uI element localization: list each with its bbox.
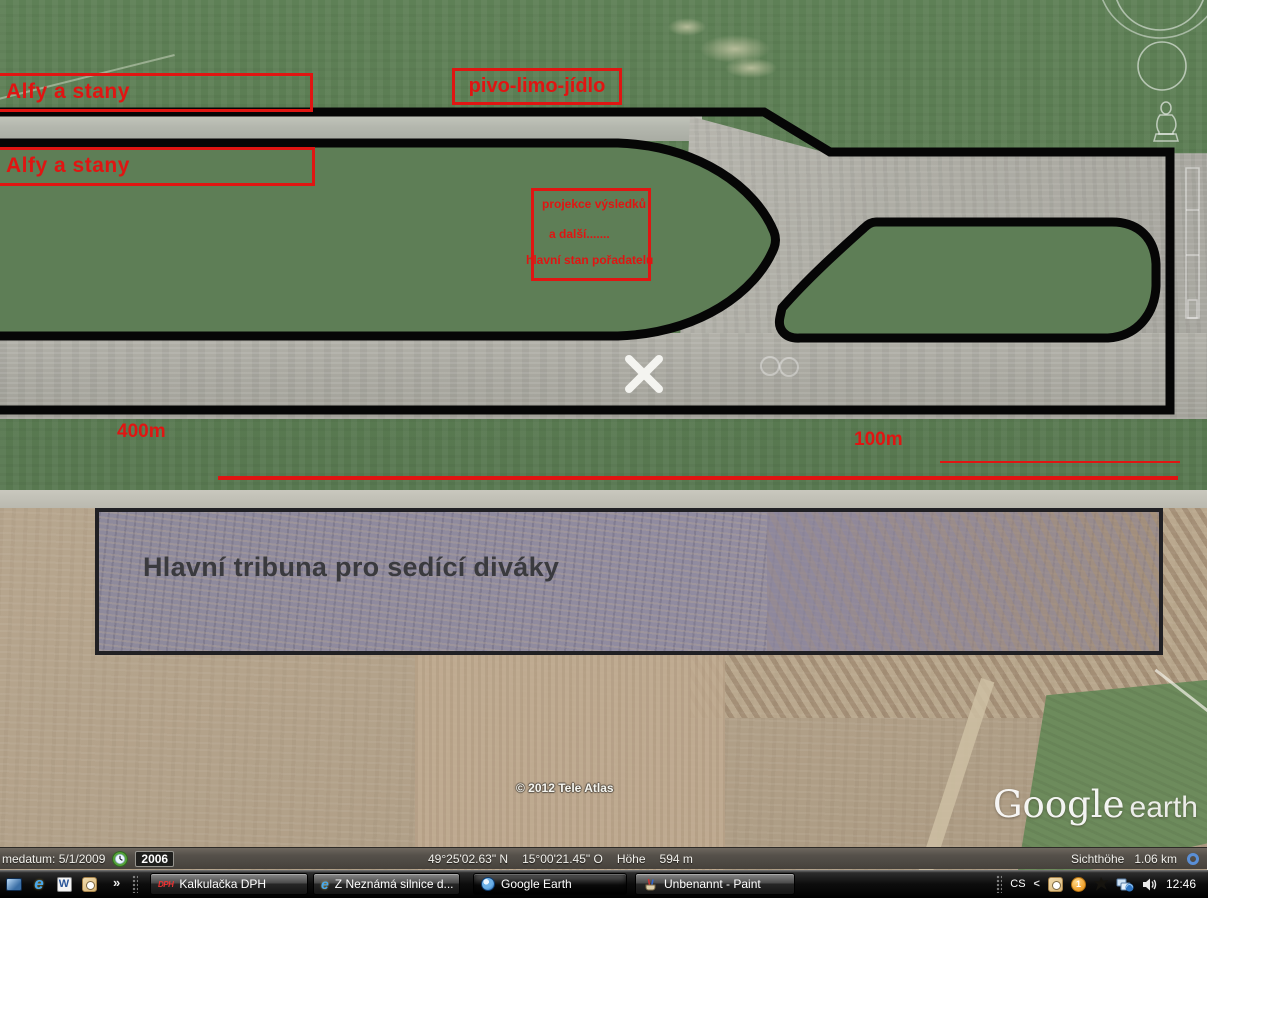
runway-x-marking [629,359,659,389]
language-indicator[interactable]: CS [1010,878,1025,890]
internet-explorer-icon[interactable]: e [30,875,48,893]
google-earth-logo: Googleearth [993,783,1198,826]
word-icon[interactable]: W [55,875,73,893]
distance-label-400m: 400m [117,421,166,443]
taskbar-grip-handle[interactable] [132,875,138,893]
internet-explorer-icon: e [321,876,329,892]
tray-ink-splat-icon[interactable] [1094,877,1108,891]
show-desktop-icon[interactable] [5,875,23,893]
annotation-line: hlavní stan pořadatelů [526,253,653,267]
annotation-box-projekce: projekce výsledků a další....... hlavní … [531,188,651,281]
quick-launch-bar: e W [5,875,98,893]
annotation-box-pivo: pivo-limo-jídlo [452,68,622,105]
status-bar: medatum: 5/1/2009 2006 49°25'02.63" N 15… [0,847,1207,869]
volume-icon[interactable] [1142,877,1158,892]
pavement-circle-marking [780,358,798,376]
annotation-label: Alfy a stany [6,80,130,104]
system-tray: CS < 1 12:46 [996,870,1208,898]
pavement-circle-marking [761,357,779,375]
pegman-figure-icon[interactable] [1154,102,1178,141]
plowed-field-center [415,650,725,870]
logo-google: Google [993,783,1125,826]
field-road [0,490,1207,510]
google-earth-viewport[interactable]: Alfy a stany Alfy a stany pivo-limo-jídl… [0,0,1207,870]
annotation-label: pivo-limo-jídlo [455,75,619,98]
red-measure-line-short [940,461,1180,463]
annotation-box-alfy-top: Alfy a stany [0,73,313,112]
annotation-line: a další....... [549,227,610,241]
paint-icon [643,877,658,892]
taskbar-button-kalkulacka[interactable]: DPH Kalkulačka DPH [150,873,308,895]
streaming-indicator-icon [1187,853,1199,865]
annotation-label: Alfy a stany [6,154,130,178]
google-earth-globe-icon [481,877,495,891]
red-measure-line-long [218,476,1178,480]
elevation-label: Höhe [617,852,646,866]
screen: Alfy a stany Alfy a stany pivo-limo-jídl… [0,0,1280,1024]
tray-grip-handle[interactable] [996,875,1002,893]
latitude-readout: 49°25'02.63" N [428,852,508,866]
tray-clock[interactable]: 12:46 [1166,877,1196,891]
right-infield-outline [779,222,1156,338]
tribuna-field-texture [767,512,1159,651]
nav-compass-rings[interactable] [1098,0,1207,90]
quick-launch-overflow-chevron[interactable]: » [113,875,120,890]
green-field-bottom-right [1018,680,1207,870]
tray-reminder-icon[interactable] [1048,877,1063,892]
windows-taskbar: e W » DPH Kalkulačka DPH e Z Neznámá sil… [0,870,1208,898]
dragstrip-marking [1186,168,1199,318]
tribuna-label: Hlavní tribuna pro sedící diváky [143,552,559,583]
elevation-value: 594 m [660,852,693,866]
copyright-text: © 2012 Tele Atlas [516,781,614,795]
network-status-icon[interactable] [1116,877,1134,892]
tray-collapse-chevron[interactable]: < [1034,878,1040,890]
taskbar-button-ie-page[interactable]: e Z Neznámá silnice d... [313,873,460,895]
eye-altitude-label: Sichthöhe [1071,852,1124,866]
taskbar-button-label: Unbenannt - Paint [664,877,761,891]
annotation-box-alfy-bottom: Alfy a stany [0,147,315,186]
taskbar-button-google-earth[interactable]: Google Earth [473,873,627,895]
taskbar-button-paint[interactable]: Unbenannt - Paint [635,873,795,895]
logo-earth: earth [1130,791,1198,824]
taskbar-button-label: Google Earth [501,877,572,891]
dph-calculator-icon: DPH [158,880,173,889]
taskbar-button-label: Z Neznámá silnice d... [335,877,454,891]
imagery-date-text: medatum: 5/1/2009 [2,852,105,866]
longitude-readout: 15°00'21.45" O [522,852,603,866]
imagery-year-badge[interactable]: 2006 [135,851,174,867]
tray-update-badge-icon[interactable]: 1 [1071,877,1086,892]
taskbar-button-label: Kalkulačka DPH [179,877,266,891]
eye-altitude-value: 1.06 km [1134,852,1177,866]
outlook-icon[interactable] [80,875,98,893]
tribuna-rectangle: Hlavní tribuna pro sedící diváky [95,508,1163,655]
distance-label-100m: 100m [854,429,903,451]
historical-imagery-clock-icon[interactable] [112,851,128,867]
annotation-line: projekce výsledků [542,197,646,211]
